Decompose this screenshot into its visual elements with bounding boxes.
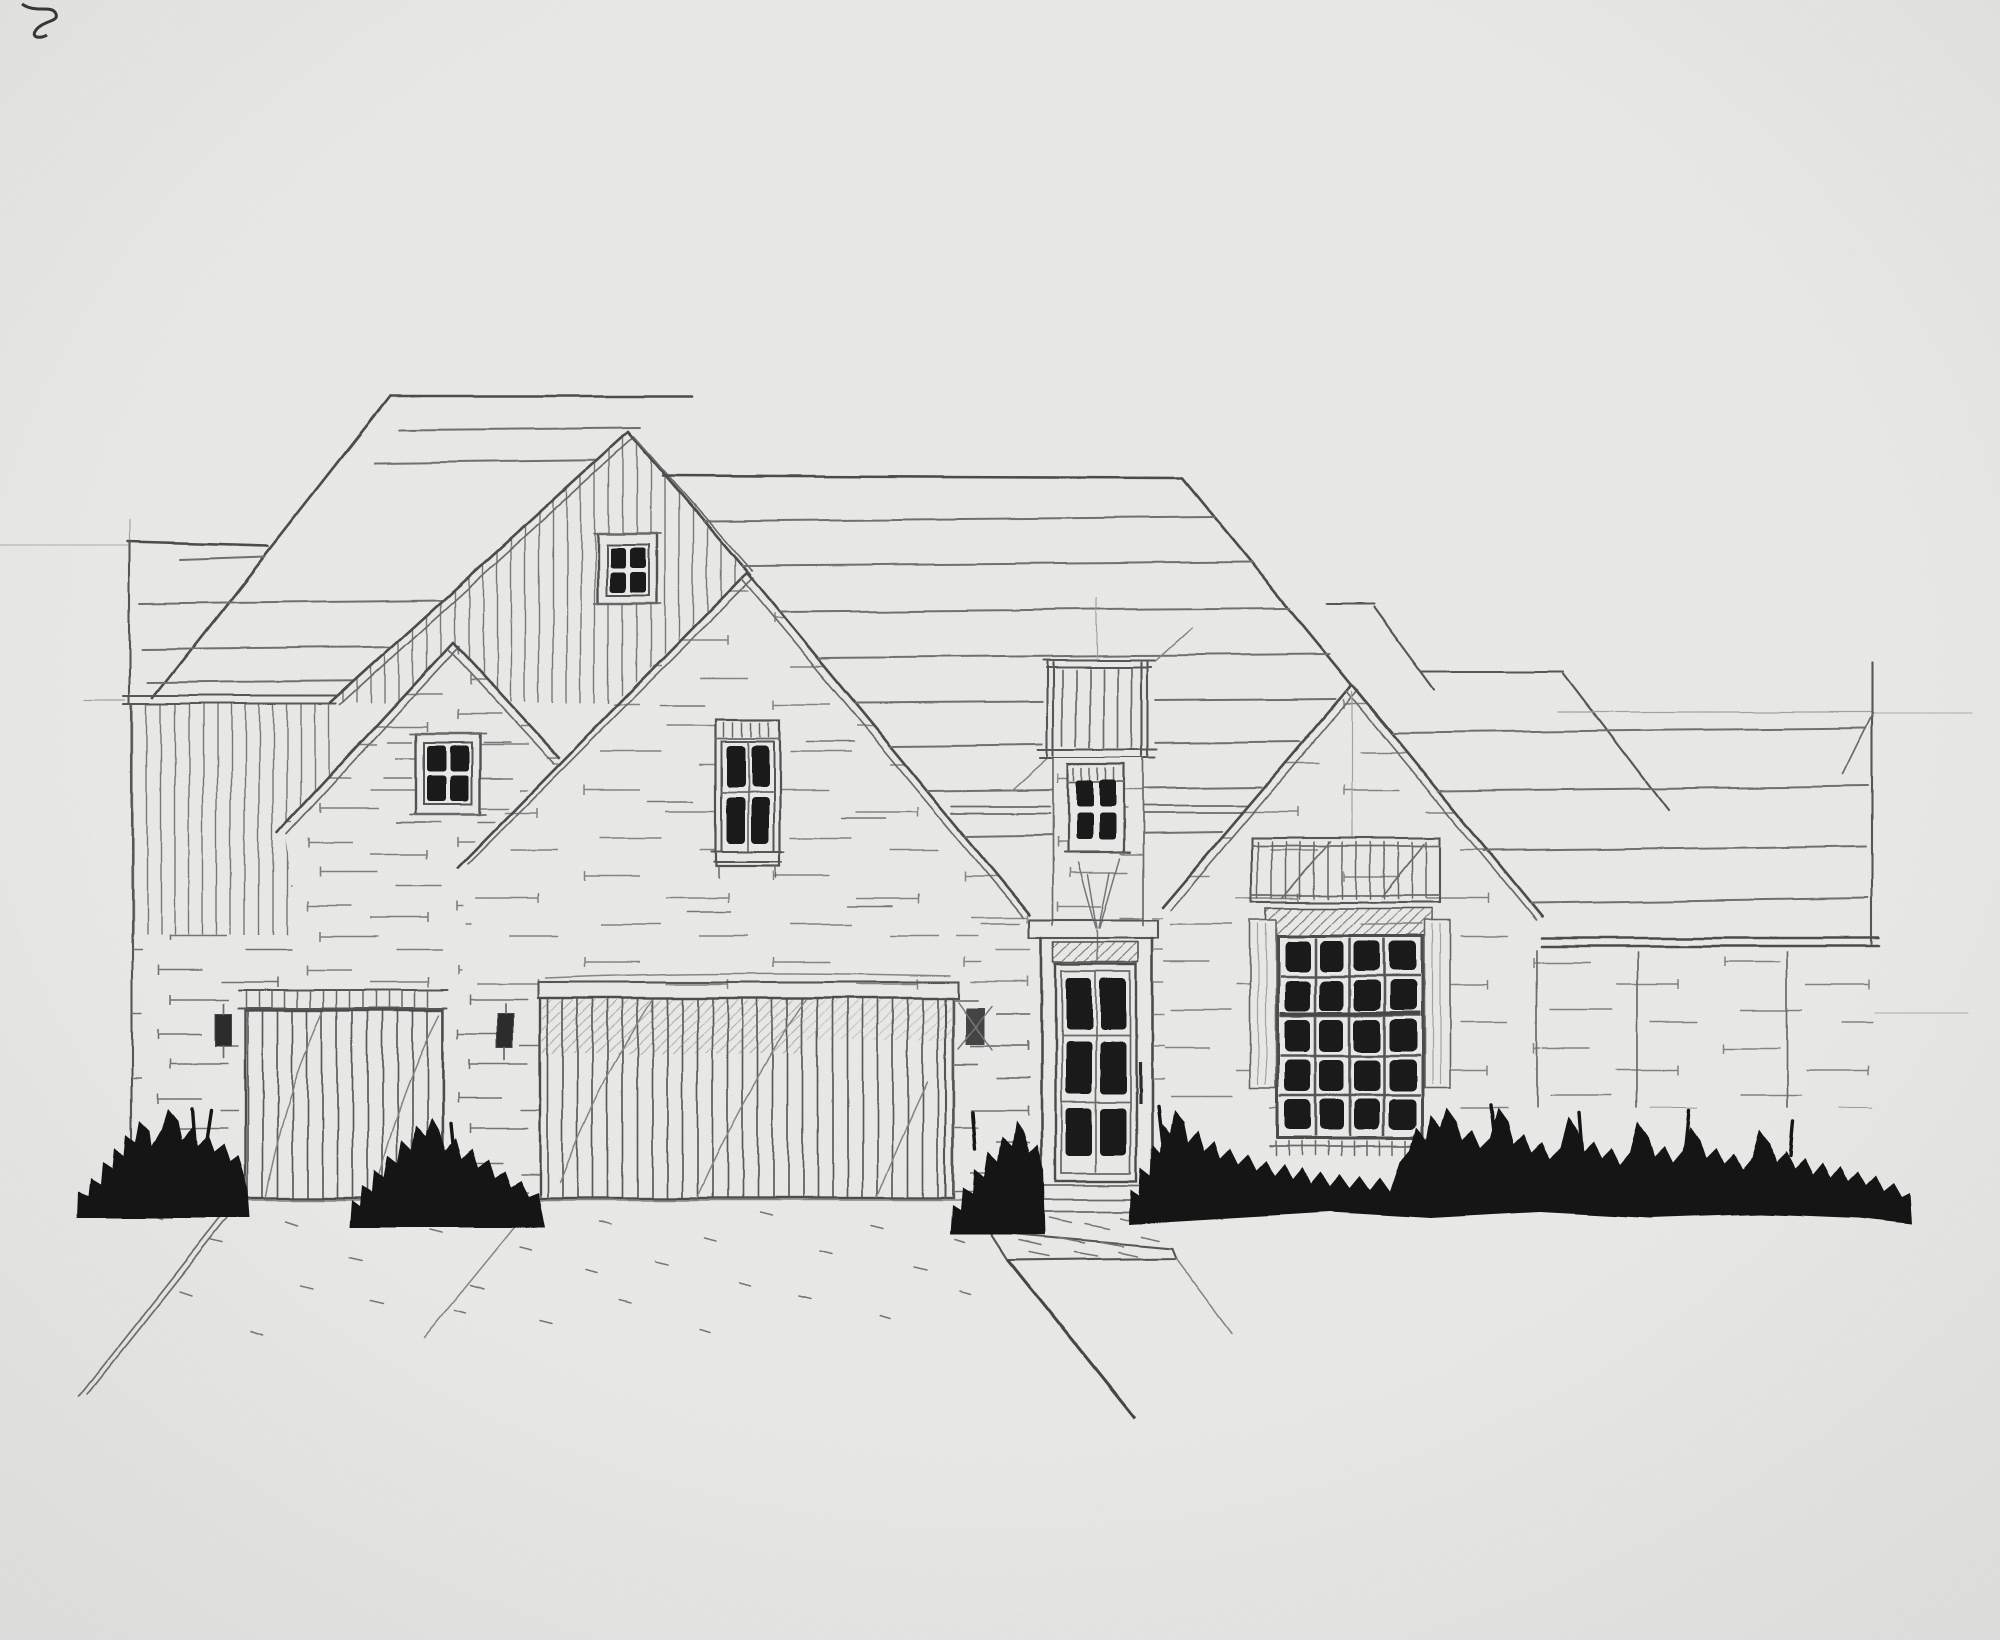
sketch-page: Hand-drawn architectural front-elevation… [0,0,2000,1640]
house-elevation-sketch: Hand-drawn architectural front-elevation… [0,0,2000,1640]
paper-grain [0,0,2000,1640]
